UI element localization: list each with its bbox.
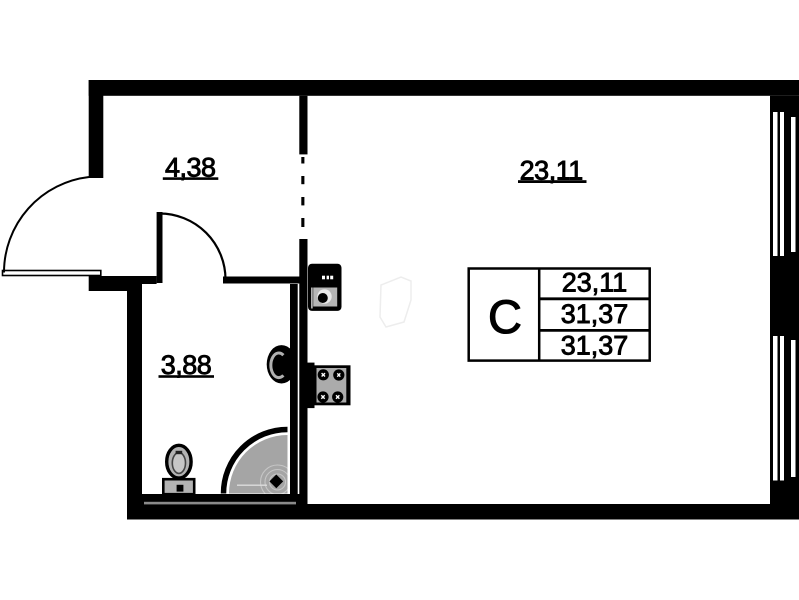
svg-text:23,11: 23,11 [562,268,628,298]
svg-text:31,37: 31,37 [561,299,629,329]
svg-text:С: С [488,290,522,343]
svg-text:31,37: 31,37 [561,330,629,360]
